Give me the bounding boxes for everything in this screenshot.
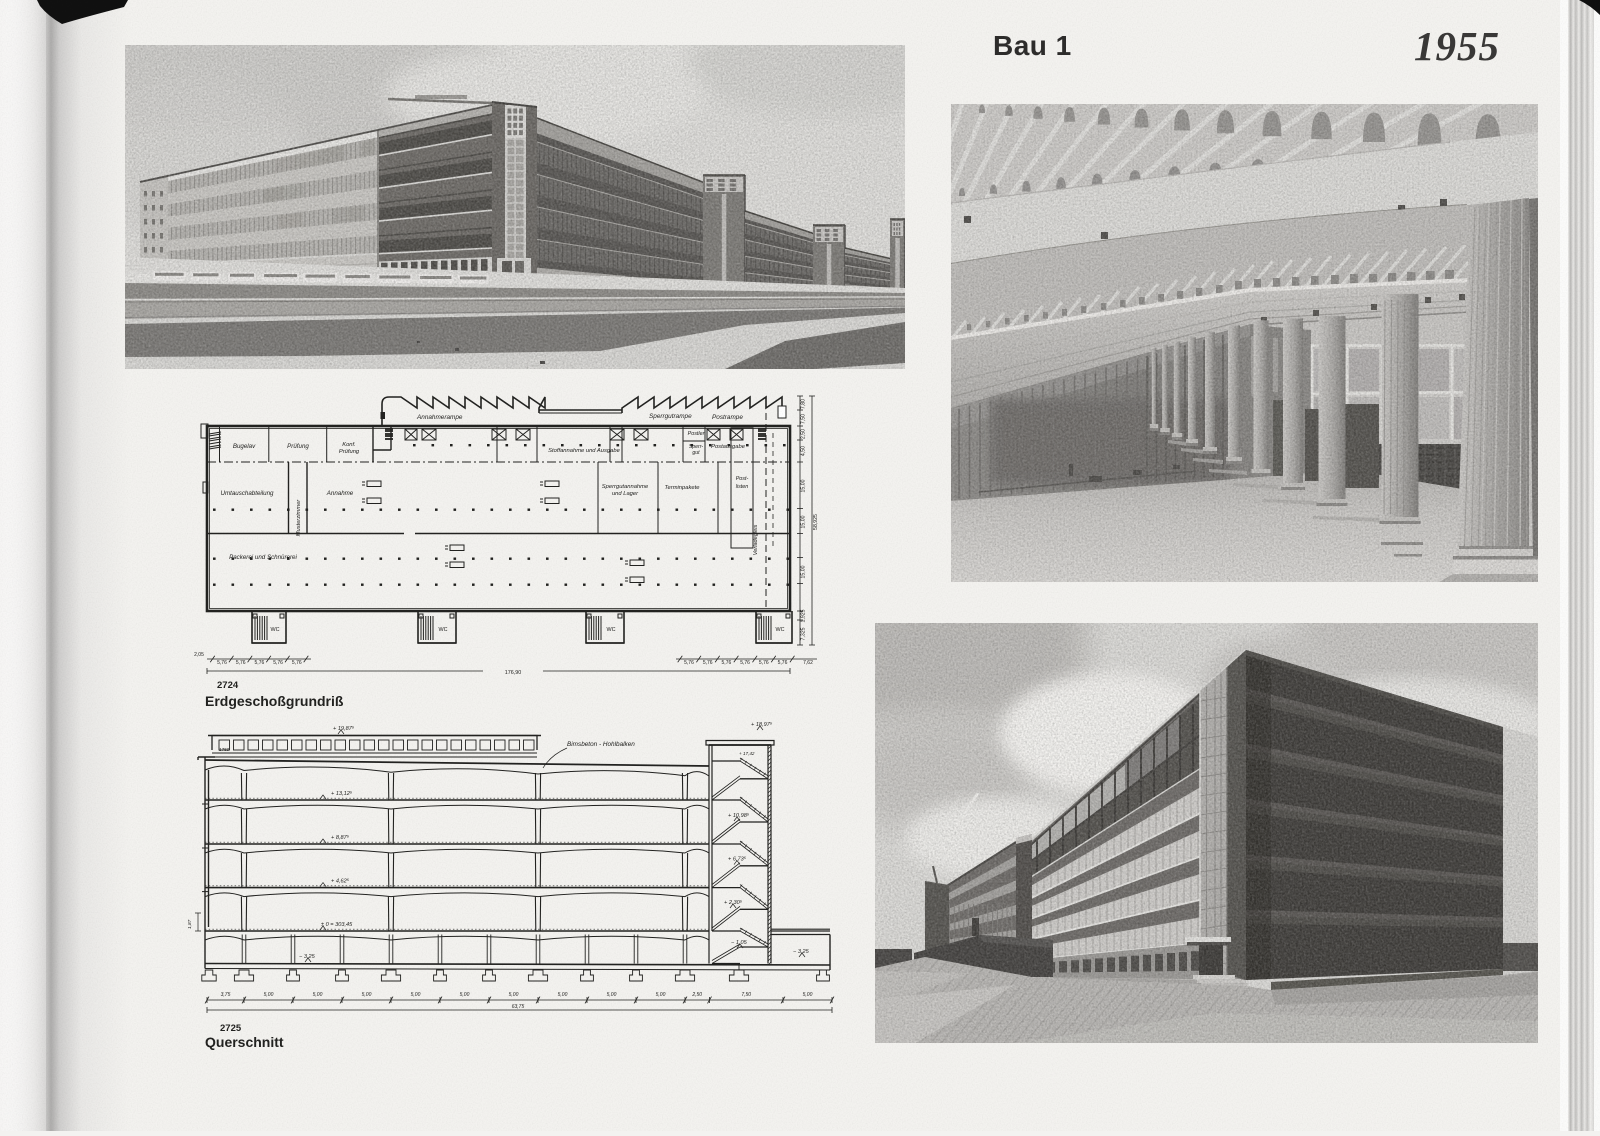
svg-text:WC: WC bbox=[271, 627, 280, 633]
svg-text:5,76: 5,76 bbox=[684, 660, 694, 666]
svg-text:5,76: 5,76 bbox=[740, 660, 750, 666]
svg-text:Querschnitt: Querschnitt bbox=[205, 1034, 284, 1050]
svg-text:und Lager: und Lager bbox=[612, 491, 639, 497]
svg-text:1,925: 1,925 bbox=[801, 609, 807, 622]
svg-text:Sperrgutannahme: Sperrgutannahme bbox=[602, 484, 649, 490]
svg-text:Post-: Post- bbox=[736, 476, 749, 482]
svg-text:15,00: 15,00 bbox=[801, 479, 807, 492]
svg-text:58,925: 58,925 bbox=[813, 514, 819, 530]
svg-text:5,76: 5,76 bbox=[759, 660, 769, 666]
svg-text:7,50: 7,50 bbox=[741, 992, 751, 998]
svg-text:Postausgabe: Postausgabe bbox=[711, 444, 746, 450]
svg-text:± 0 = 303,45: ± 0 = 303,45 bbox=[321, 922, 353, 928]
svg-text:Prüfung: Prüfung bbox=[287, 443, 309, 450]
svg-text:5,76: 5,76 bbox=[273, 660, 283, 666]
svg-text:7,62: 7,62 bbox=[803, 660, 813, 666]
svg-text:4,50: 4,50 bbox=[801, 446, 807, 456]
svg-text:63,75: 63,75 bbox=[512, 1004, 525, 1010]
svg-text:5,00: 5,00 bbox=[362, 992, 372, 998]
svg-text:gut: gut bbox=[692, 450, 700, 456]
svg-text:15,00: 15,00 bbox=[801, 565, 807, 578]
svg-text:7,80: 7,80 bbox=[801, 399, 807, 409]
svg-text:Erdgeschoßgrundriß: Erdgeschoßgrundriß bbox=[205, 693, 344, 709]
svg-text:Stoffannahme und Ausgabe: Stoffannahme und Ausgabe bbox=[548, 448, 620, 454]
svg-text:Musterzimmer: Musterzimmer bbox=[296, 499, 302, 537]
svg-text:+ 10,98⁵: + 10,98⁵ bbox=[728, 812, 750, 819]
svg-text:+ 19,87⁵: + 19,87⁵ bbox=[333, 725, 355, 732]
svg-text:2,50: 2,50 bbox=[801, 429, 807, 439]
svg-text:176,90: 176,90 bbox=[505, 670, 522, 676]
svg-text:5,00: 5,00 bbox=[411, 992, 421, 998]
svg-text:Bugelav: Bugelav bbox=[233, 443, 256, 450]
svg-text:1,87: 1,87 bbox=[187, 919, 193, 929]
svg-text:WC: WC bbox=[607, 627, 616, 633]
svg-text:+ 17,42: + 17,42 bbox=[739, 751, 755, 756]
svg-text:Prüfung: Prüfung bbox=[339, 449, 360, 455]
svg-text:5,00: 5,00 bbox=[558, 992, 568, 998]
svg-text:5,00: 5,00 bbox=[509, 992, 519, 998]
svg-text:Annahme: Annahme bbox=[326, 490, 354, 497]
svg-text:5,76: 5,76 bbox=[236, 660, 246, 666]
svg-text:5,76: 5,76 bbox=[217, 660, 227, 666]
svg-text:Bimsbeton - Hohlbalken: Bimsbeton - Hohlbalken bbox=[567, 741, 635, 748]
svg-text:5,00: 5,00 bbox=[264, 992, 274, 998]
svg-text:15,00: 15,00 bbox=[801, 515, 807, 528]
svg-text:Verladegleis: Verladegleis bbox=[753, 525, 759, 556]
svg-text:Konf.: Konf. bbox=[342, 442, 356, 448]
svg-text:5,76: 5,76 bbox=[292, 660, 302, 666]
svg-text:5,00: 5,00 bbox=[656, 992, 666, 998]
svg-text:Sperrgutrampe: Sperrgutrampe bbox=[649, 413, 692, 420]
svg-text:3,75: 3,75 bbox=[221, 992, 231, 998]
svg-text:+ 4,62⁵: + 4,62⁵ bbox=[331, 878, 350, 885]
svg-text:Terminpakete: Terminpakete bbox=[665, 485, 701, 491]
svg-text:7,50: 7,50 bbox=[801, 414, 807, 424]
svg-text:2,05: 2,05 bbox=[194, 652, 204, 658]
svg-text:WC: WC bbox=[439, 627, 448, 633]
svg-text:Annahmerampe: Annahmerampe bbox=[416, 414, 463, 421]
svg-text:WC: WC bbox=[776, 627, 785, 633]
svg-text:5,76: 5,76 bbox=[722, 660, 732, 666]
svg-text:+ 8,87⁵: + 8,87⁵ bbox=[331, 834, 350, 841]
svg-text:7,325: 7,325 bbox=[801, 627, 807, 640]
svg-text:5,00: 5,00 bbox=[607, 992, 617, 998]
svg-text:5,76: 5,76 bbox=[255, 660, 265, 666]
svg-text:+ 13,12⁵: + 13,12⁵ bbox=[331, 790, 353, 797]
svg-text:Packerei und Schnürerei: Packerei und Schnürerei bbox=[229, 554, 297, 561]
svg-text:5,00: 5,00 bbox=[803, 992, 813, 998]
svg-text:5,00: 5,00 bbox=[460, 992, 470, 998]
svg-text:+ 18,97⁵: + 18,97⁵ bbox=[751, 721, 773, 728]
svg-text:Postrampe: Postrampe bbox=[712, 414, 743, 421]
svg-text:2724: 2724 bbox=[217, 680, 239, 691]
svg-text:2725: 2725 bbox=[220, 1023, 242, 1034]
svg-text:Postler: Postler bbox=[688, 431, 705, 437]
svg-text:Umtauschabteilung: Umtauschabteilung bbox=[221, 490, 275, 497]
svg-text:5,00: 5,00 bbox=[313, 992, 323, 998]
svg-text:5,76: 5,76 bbox=[778, 660, 788, 666]
svg-text:2,50: 2,50 bbox=[691, 992, 702, 998]
svg-text:5,76: 5,76 bbox=[703, 660, 713, 666]
svg-text:listen: listen bbox=[736, 484, 749, 490]
svg-text:1750: 1750 bbox=[219, 747, 230, 752]
